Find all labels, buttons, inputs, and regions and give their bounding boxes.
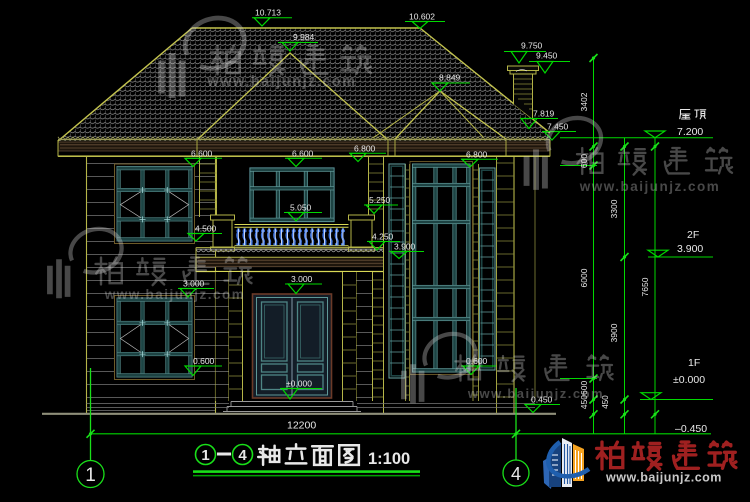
svg-text:www.baijunjz.com: www.baijunjz.com	[579, 179, 721, 194]
svg-text:0.600: 0.600	[193, 356, 215, 366]
svg-text:1: 1	[201, 447, 209, 464]
svg-text:5.250: 5.250	[369, 195, 391, 205]
svg-text:4.500: 4.500	[195, 224, 217, 234]
svg-text:www.baijunjz.com: www.baijunjz.com	[206, 74, 356, 90]
svg-text:www.baijunjz.com: www.baijunjz.com	[104, 287, 246, 302]
svg-text:4: 4	[511, 464, 521, 484]
svg-text:6.600: 6.600	[292, 149, 314, 159]
svg-text:9.984: 9.984	[293, 32, 315, 42]
svg-text:6000: 6000	[579, 268, 589, 287]
svg-text:4: 4	[238, 447, 247, 464]
svg-text:8.849: 8.849	[439, 73, 461, 83]
svg-text:9.750: 9.750	[521, 41, 543, 51]
svg-text:3402: 3402	[579, 92, 589, 111]
svg-text:10.713: 10.713	[255, 8, 281, 18]
svg-text:7650: 7650	[640, 277, 650, 296]
svg-text:3.000: 3.000	[291, 274, 313, 284]
svg-text:–0.450: –0.450	[675, 423, 707, 435]
svg-text:www.baijunjz.com: www.baijunjz.com	[467, 386, 604, 401]
svg-text:4.250: 4.250	[372, 232, 394, 242]
svg-text:www.baijunjz.com: www.baijunjz.com	[605, 471, 722, 485]
svg-text:9.450: 9.450	[536, 51, 558, 61]
svg-text:±0.000: ±0.000	[673, 374, 705, 386]
svg-text:12200: 12200	[287, 420, 316, 432]
svg-text:7.200: 7.200	[677, 126, 703, 138]
svg-text:3300: 3300	[609, 199, 619, 218]
svg-text:1:100: 1:100	[368, 450, 410, 468]
svg-text:1: 1	[85, 465, 96, 486]
svg-text:10.602: 10.602	[409, 12, 435, 22]
svg-text:6.800: 6.800	[466, 150, 488, 160]
svg-text:3.900: 3.900	[677, 243, 703, 255]
svg-text:7.819: 7.819	[533, 109, 555, 119]
svg-text:6.800: 6.800	[354, 144, 376, 154]
svg-text:5.050: 5.050	[290, 203, 312, 213]
svg-text:3900: 3900	[609, 323, 619, 342]
svg-text:3.900: 3.900	[394, 242, 416, 252]
svg-text:±0.000: ±0.000	[286, 379, 312, 389]
svg-text:6.600: 6.600	[191, 149, 213, 159]
svg-text:2F: 2F	[687, 229, 699, 241]
svg-text:1F: 1F	[688, 357, 700, 369]
